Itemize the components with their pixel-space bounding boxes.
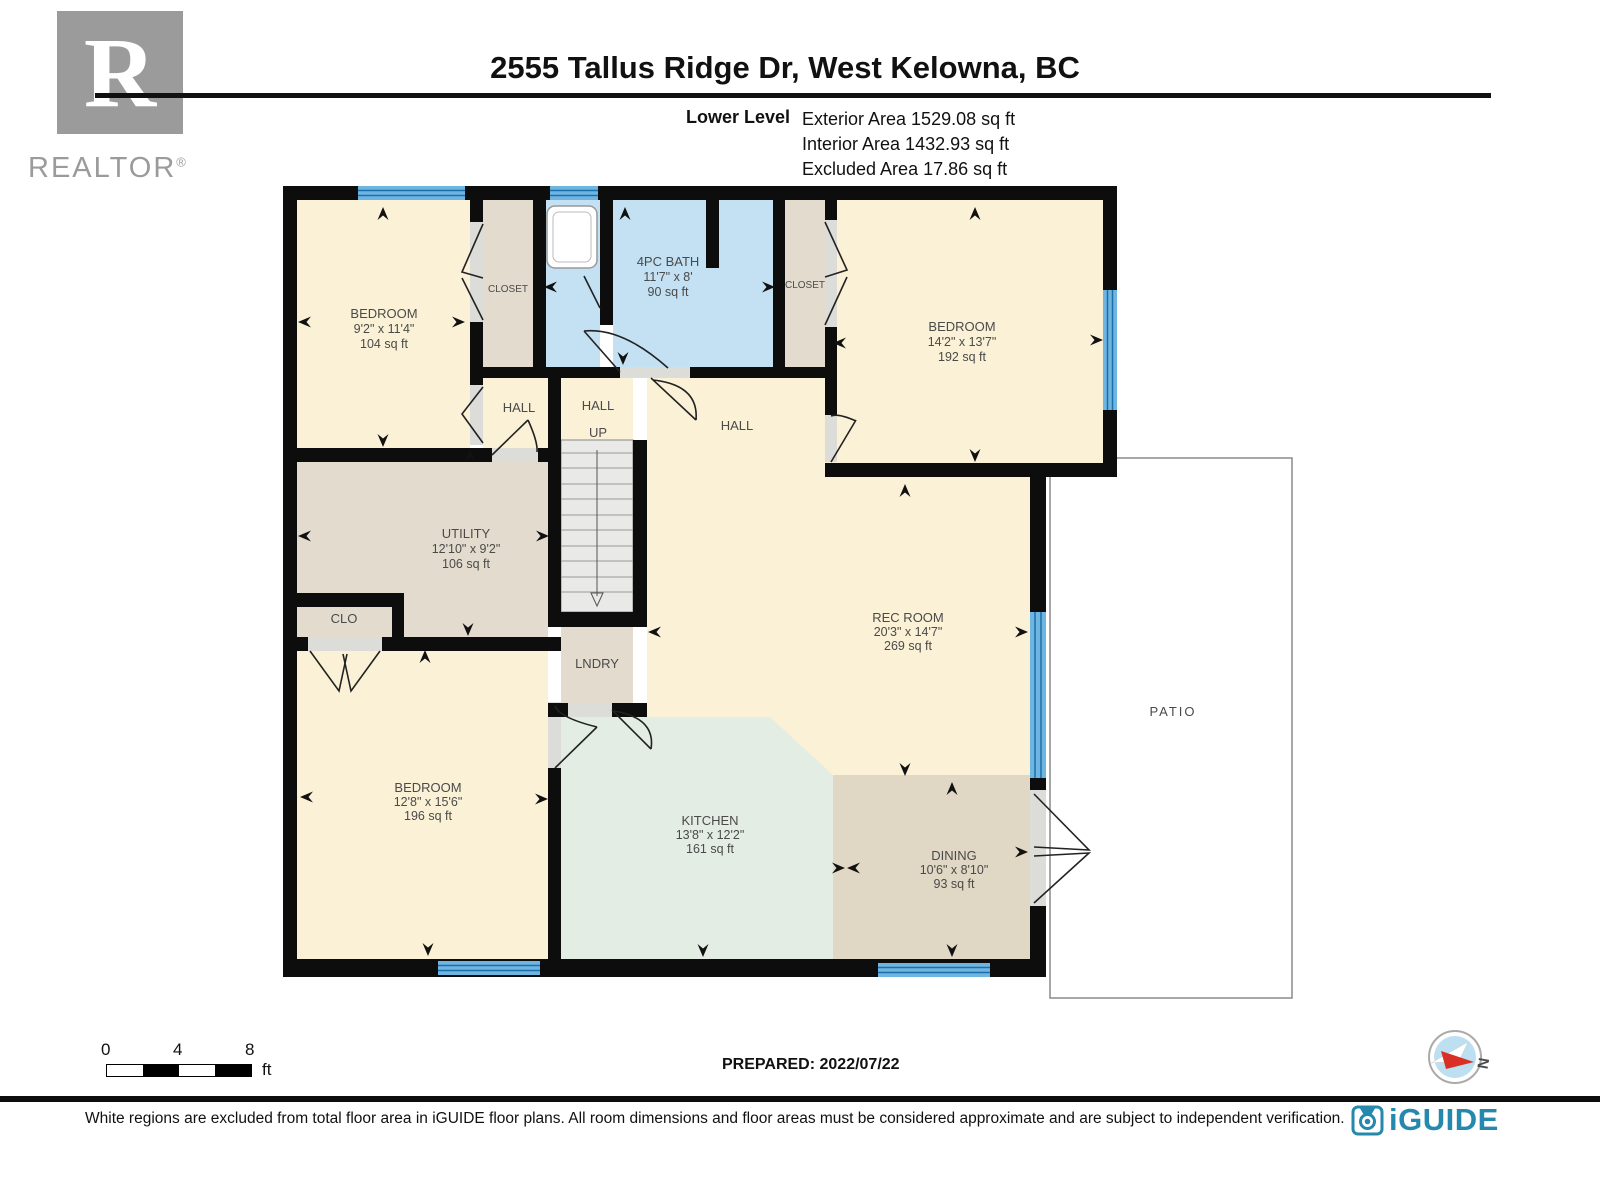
svg-text:106 sq ft: 106 sq ft bbox=[442, 557, 490, 571]
patio-label: PATIO bbox=[1149, 704, 1196, 719]
svg-text:UP: UP bbox=[589, 425, 607, 440]
svg-text:192 sq ft: 192 sq ft bbox=[938, 350, 986, 364]
scale-tick-0: 0 bbox=[101, 1040, 110, 1060]
svg-text:14'2" x 13'7": 14'2" x 13'7" bbox=[928, 335, 997, 349]
svg-text:13'8" x 12'2": 13'8" x 12'2" bbox=[676, 828, 745, 842]
registered-mark: ® bbox=[176, 154, 188, 169]
level-label: Lower Level bbox=[540, 107, 790, 128]
exterior-area: Exterior Area 1529.08 sq ft bbox=[802, 107, 1015, 132]
bathtub-icon bbox=[547, 206, 597, 268]
iguide-logo: iGUIDE bbox=[1350, 1102, 1499, 1138]
svg-text:104 sq ft: 104 sq ft bbox=[360, 337, 408, 351]
iguide-wordmark: iGUIDE bbox=[1389, 1102, 1499, 1138]
svg-text:161 sq ft: 161 sq ft bbox=[686, 842, 734, 856]
stairs bbox=[561, 440, 633, 612]
svg-text:269 sq ft: 269 sq ft bbox=[884, 639, 932, 653]
bath-label: 4PC BATH bbox=[637, 254, 700, 269]
rec-room-label: REC ROOM bbox=[872, 610, 944, 625]
excluded-area: Excluded Area 17.86 sq ft bbox=[802, 157, 1015, 182]
area-summary: Exterior Area 1529.08 sq ft Interior Are… bbox=[802, 107, 1015, 182]
disclaimer-text: White regions are excluded from total fl… bbox=[85, 1110, 1345, 1128]
svg-text:90 sq ft: 90 sq ft bbox=[648, 285, 690, 299]
svg-text:12'10" x 9'2": 12'10" x 9'2" bbox=[432, 542, 501, 556]
svg-text:12'8" x 15'6": 12'8" x 15'6" bbox=[394, 795, 463, 809]
scale-unit: ft bbox=[262, 1060, 271, 1080]
clo-label: CLO bbox=[331, 611, 358, 626]
scale-tick-8: 8 bbox=[245, 1040, 254, 1060]
svg-text:11'7" x 8': 11'7" x 8' bbox=[643, 270, 692, 284]
utility-label: UTILITY bbox=[442, 526, 491, 541]
interior-area: Interior Area 1432.93 sq ft bbox=[802, 132, 1015, 157]
dining-label: DINING bbox=[931, 848, 977, 863]
hall-center-label: HALL bbox=[721, 418, 754, 433]
kitchen-label: KITCHEN bbox=[681, 813, 738, 828]
iguide-camera-icon bbox=[1350, 1103, 1386, 1137]
scale-bar: 0 4 8 ft bbox=[106, 1040, 306, 1080]
hall-west-label: HALL bbox=[503, 400, 536, 415]
realtor-wordmark: REALTOR® bbox=[28, 152, 203, 185]
title-rule bbox=[95, 93, 1491, 98]
stair-hall-label: HALL bbox=[582, 398, 615, 413]
floor-plan: PATIO bbox=[0, 0, 1600, 1200]
patio-area: PATIO bbox=[1050, 458, 1292, 998]
svg-text:10'6" x 8'10": 10'6" x 8'10" bbox=[920, 863, 989, 877]
closet-right-label: CLOSET bbox=[785, 280, 825, 291]
laundry-label: LNDRY bbox=[575, 656, 619, 671]
svg-text:9'2" x 11'4": 9'2" x 11'4" bbox=[354, 322, 415, 336]
svg-text:196 sq ft: 196 sq ft bbox=[404, 809, 452, 823]
compass-icon: N bbox=[1429, 1031, 1492, 1083]
closet-left-label: CLOSET bbox=[488, 284, 528, 295]
bedroom-tl-label: BEDROOM bbox=[350, 306, 417, 321]
bedroom-tr-label: BEDROOM bbox=[928, 319, 995, 334]
scale-tick-4: 4 bbox=[173, 1040, 182, 1060]
scale-bar-segments bbox=[106, 1064, 252, 1077]
page-title: 2555 Tallus Ridge Dr, West Kelowna, BC bbox=[0, 50, 1570, 86]
prepared-date: PREPARED: 2022/07/22 bbox=[722, 1056, 900, 1074]
svg-text:20'3" x 14'7": 20'3" x 14'7" bbox=[874, 625, 943, 639]
svg-text:93 sq ft: 93 sq ft bbox=[934, 877, 976, 891]
bedroom-bl-label: BEDROOM bbox=[394, 780, 461, 795]
